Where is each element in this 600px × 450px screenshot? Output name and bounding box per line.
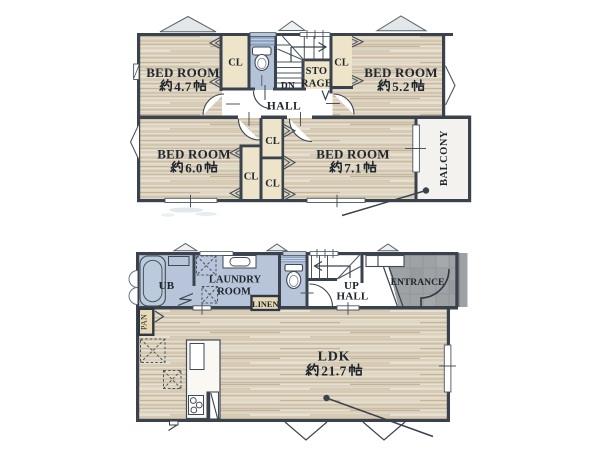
svg-text:HALL: HALL (267, 100, 301, 112)
svg-text:LINEN: LINEN (252, 300, 278, 309)
svg-text:ENTRANCE: ENTRANCE (391, 277, 445, 288)
svg-text:DN: DN (281, 82, 295, 92)
svg-text:CL: CL (228, 58, 243, 69)
svg-text:CL: CL (244, 172, 259, 183)
svg-text:6.0: 6.0 (185, 161, 202, 176)
svg-text:7.1: 7.1 (344, 161, 361, 176)
svg-text:BED ROOM: BED ROOM (157, 147, 230, 162)
svg-text:21.7: 21.7 (321, 364, 347, 379)
svg-text:CL: CL (265, 179, 280, 190)
svg-text:4.7: 4.7 (174, 79, 192, 94)
svg-text:5.2: 5.2 (392, 79, 409, 94)
svg-text:LDK: LDK (318, 350, 351, 365)
svg-text:LAUNDRY: LAUNDRY (209, 275, 262, 286)
svg-text:HALL: HALL (337, 291, 369, 303)
svg-text:UB: UB (159, 280, 175, 292)
svg-text:BED ROOM: BED ROOM (364, 65, 437, 80)
svg-text:BED ROOM: BED ROOM (316, 147, 389, 162)
svg-text:STO: STO (306, 66, 328, 77)
svg-text:PAN: PAN (140, 314, 149, 330)
svg-text:CL: CL (265, 136, 280, 147)
svg-text:ROOM: ROOM (217, 287, 251, 298)
svg-text:BED ROOM: BED ROOM (146, 65, 219, 80)
svg-text:RAGE: RAGE (301, 79, 332, 90)
svg-text:CL: CL (334, 58, 349, 69)
svg-text:BALCONY: BALCONY (439, 130, 450, 186)
